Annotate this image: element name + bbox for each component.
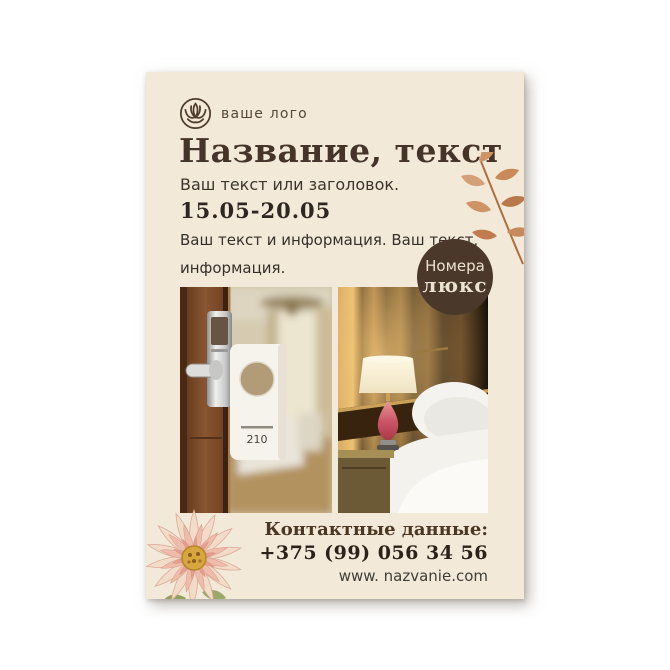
flyer-poster: ваше лого Название, текст Ваш текст или …	[146, 72, 524, 599]
badge-line-2: люкс	[422, 274, 487, 296]
door-hanger-tag: 210	[230, 344, 286, 460]
contact-block: Контактные данные: +375 (99) 056 34 56 w…	[259, 518, 488, 587]
contacts-heading: Контактные данные:	[259, 518, 488, 541]
lotus-logo-icon	[179, 97, 212, 130]
logo: ваше лого	[179, 97, 308, 130]
dahlia-flower-decoration	[146, 506, 254, 599]
luxury-rooms-badge: Номера люкс	[417, 239, 493, 315]
date-range: 15.05-20.05	[180, 198, 331, 223]
photo-row: 210	[180, 287, 488, 513]
badge-line-1: Номера	[425, 258, 485, 275]
contacts-website: www. nazvanie.com	[259, 566, 488, 587]
door-hanger-photo: 210	[180, 287, 332, 513]
door-tag-number: 210	[247, 433, 268, 446]
contacts-phone: +375 (99) 056 34 56	[259, 541, 488, 566]
hotel-bed-photo	[338, 287, 488, 513]
poster-subtitle: Ваш текст или заголовок.	[180, 175, 399, 194]
logo-text: ваше лого	[221, 106, 308, 122]
